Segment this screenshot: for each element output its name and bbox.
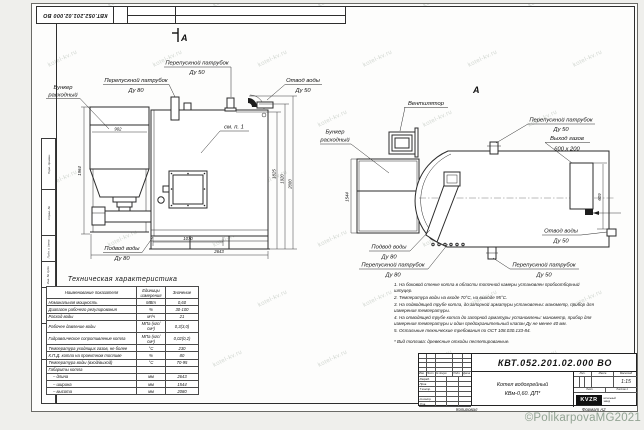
titleblock-doc-number: КВТ.052.201.02.000 ВО	[472, 354, 638, 372]
margin-cell: Перв. примен.	[42, 139, 55, 190]
tech-table-title: Техническая характеристика	[46, 276, 199, 283]
note-item: 2. Температура воды на входе 70°С, на вы…	[394, 295, 594, 301]
notes-block: 1. На боковой стенке котла в области топ…	[394, 282, 594, 345]
margin-cell: Справ. №	[42, 190, 55, 236]
titleblock-name: Котел водогрейный КВм-0,60. ДП*	[472, 372, 574, 407]
tech-table-row: Диапазон рабочего регулирования%30-100	[47, 306, 199, 313]
title-block: Изм. Лист № докум. Подп. Дата Разраб.Про…	[418, 353, 637, 406]
tech-table-row: К.П.Д. котла на проектном топливе%80	[47, 352, 199, 359]
stamp-doc-cell: КВТ.052.201.02.000 ВО	[37, 7, 113, 23]
role-row: Утв.	[419, 402, 471, 407]
format-label: Формат А2	[582, 407, 606, 412]
tech-table-row: – ширинамм1544	[47, 381, 199, 388]
col-value: Значение	[166, 287, 199, 299]
col-parameter: Наименование показателя	[47, 287, 137, 299]
tech-table-row: Рабочее давление водыМПа (кгс/см²)0,3(3,…	[47, 320, 199, 332]
note-item: 5. Остальные технические требования по О…	[394, 328, 594, 334]
logo-caption: котельный завод	[604, 397, 616, 403]
note-item: 3. На подводящей трубе котла, до запорно…	[394, 302, 594, 314]
titleblock-right: Лит. Масса Масштаб 1:15 Лист Листов 1 KV…	[574, 372, 638, 407]
drawing-sheet: kotel-kv.rukotel-kv.rukotel-kv.rukotel-k…	[31, 3, 638, 412]
stamp-cell	[127, 7, 175, 23]
kvzr-logo: KVZR	[576, 395, 602, 405]
diagonal-watermark: kotel-kv.ru	[31, 109, 33, 128]
change-rows	[419, 354, 471, 372]
diagonal-watermark: kotel-kv.ru	[31, 3, 33, 9]
logo-caption-line2: завод	[604, 400, 616, 403]
stamp-cell	[175, 7, 345, 23]
tech-table-row: Номинальная мощностьМВт0,60	[47, 299, 199, 306]
tech-table-row: Расход водым³/ч21	[47, 313, 199, 320]
product-name-line1: Котел водогрейный	[497, 381, 548, 390]
tech-characteristics: Техническая характеристика Наименование …	[46, 276, 199, 395]
stamp-doc-number: КВТ.052.201.02.000 ВО	[43, 12, 108, 18]
tech-table-row: Габариты котла	[47, 366, 199, 373]
tech-table-row: Температура уходящих газов, не более°С23…	[47, 345, 199, 352]
page: kotel-kv.rukotel-kv.rukotel-kv.rukotel-k…	[0, 0, 644, 430]
tech-table-header-row: Наименование показателя Единицы измерени…	[47, 287, 199, 299]
tech-table-row: Температура воды (вход/выход)°С70-95	[47, 359, 199, 366]
scale-value: 1:15	[614, 377, 638, 388]
tech-table-row: – длинамм2643	[47, 373, 199, 380]
titleblock-left-grid: Изм. Лист № докум. Подп. Дата Разраб.Про…	[419, 354, 472, 405]
margin-cell: Подп. и дата	[42, 236, 55, 262]
note-item: 4. На отводящей трубе котла до запорной …	[394, 315, 594, 327]
sheets-label: Листов 1	[606, 388, 638, 393]
fuel-note: * Вид топлива: древесные отходы пеллетир…	[394, 339, 594, 345]
diagonal-watermark: kotel-kv.ru	[31, 349, 33, 368]
diagonal-watermark: kotel-kv.ru	[31, 229, 33, 248]
lit-cells	[574, 377, 592, 388]
kopiroval-label: Копировал	[456, 407, 477, 412]
notes-list: 1. На боковой стенке котла в области топ…	[394, 282, 594, 334]
tech-table-row: – высотамм2080	[47, 388, 199, 395]
stamp-cell	[113, 7, 127, 23]
copyright-watermark: ©PolikarpovaMG2021	[525, 412, 641, 424]
logo-row: KVZR котельный завод	[574, 393, 638, 407]
role-rows: Разраб.Пров.Т.контр.Н.контр.Утв.	[419, 377, 471, 407]
note-item: 1. На боковой стенке котла в области топ…	[394, 282, 594, 294]
col-units: Единицы измерения	[137, 287, 166, 299]
mass-value	[592, 377, 614, 388]
sheet-label: Лист	[574, 388, 606, 393]
product-name-line2: КВм-0,60. ДП*	[505, 390, 541, 399]
top-left-stamp: КВТ.052.201.02.000 ВО	[36, 6, 346, 24]
tech-table-row: Гидравлическое сопротивление котлаМПа (к…	[47, 332, 199, 344]
tech-table: Наименование показателя Единицы измерени…	[46, 286, 199, 395]
